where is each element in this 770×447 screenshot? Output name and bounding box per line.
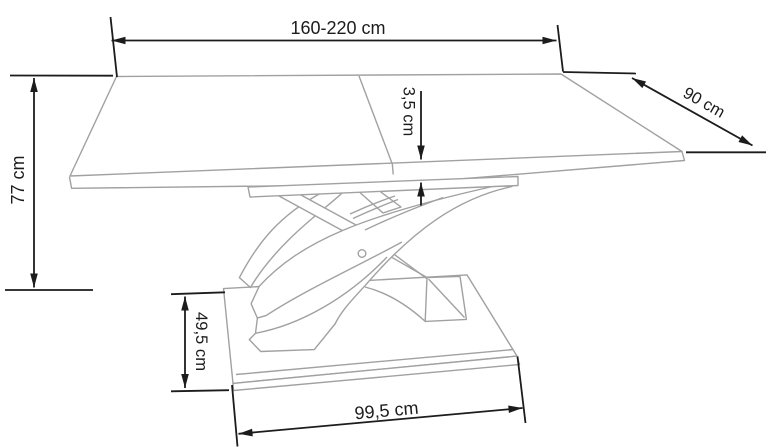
svg-text:90 cm: 90 cm — [680, 84, 728, 122]
svg-text:160-220 cm: 160-220 cm — [290, 18, 385, 38]
svg-text:49,5 cm: 49,5 cm — [192, 312, 211, 371]
svg-text:3,5 cm: 3,5 cm — [400, 87, 418, 137]
svg-text:99,5 cm: 99,5 cm — [354, 398, 420, 424]
svg-text:77 cm: 77 cm — [8, 155, 28, 204]
